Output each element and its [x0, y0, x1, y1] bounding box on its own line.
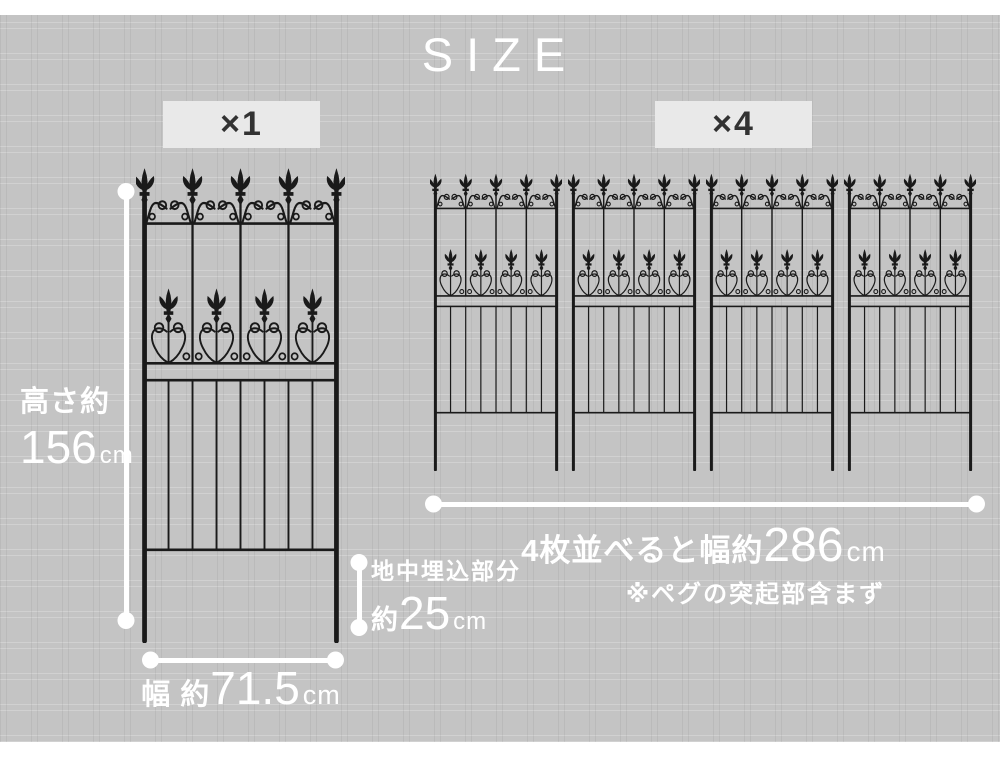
- height-unit: cm: [100, 442, 134, 469]
- row-width-label-text: 4枚並べると幅約: [521, 533, 763, 568]
- fence-panel-2-illustration: [568, 173, 700, 471]
- single-fence-illustration: [136, 167, 345, 643]
- width-label-text: 幅 約: [141, 679, 210, 711]
- fence-panel-1-illustration: [430, 173, 562, 471]
- fence-panel-4-illustration: [844, 173, 976, 471]
- row-width-unit: cm: [847, 536, 886, 567]
- quantity-badge-multi: ×4: [655, 101, 812, 148]
- buried-unit: cm: [453, 608, 487, 635]
- quantity-badge-single-label: ×1: [220, 105, 263, 144]
- size-diagram: SIZE ×1 ×4 高さ約: [0, 0, 1000, 760]
- diagram-background: SIZE ×1 ×4 高さ約: [0, 15, 1000, 742]
- row-width-value: 286: [763, 519, 843, 572]
- fence-row-illustration: [430, 173, 976, 471]
- page-title: SIZE: [0, 29, 1000, 81]
- fence-panel-3-illustration: [706, 173, 838, 471]
- buried-prefix: 約: [371, 605, 399, 635]
- height-value: 156: [20, 421, 97, 473]
- height-dimension-label: 高さ約 156cm: [20, 386, 134, 474]
- height-label-text: 高さ約: [20, 386, 110, 418]
- row-width-note: ※ペグの突起部含まず: [482, 581, 1000, 610]
- quantity-badge-multi-label: ×4: [712, 105, 755, 144]
- row-width-dimension-line: [433, 502, 977, 507]
- width-unit: cm: [303, 680, 341, 710]
- buried-depth-dimension-line: [357, 562, 362, 628]
- width-dimension-label: 幅 約71.5cm: [133, 661, 349, 715]
- width-value: 71.5: [210, 662, 300, 714]
- quantity-badge-single: ×1: [163, 101, 320, 148]
- row-width-dimension-label: 4枚並べると幅約286cm ※ペグの突起部含まず: [430, 517, 977, 609]
